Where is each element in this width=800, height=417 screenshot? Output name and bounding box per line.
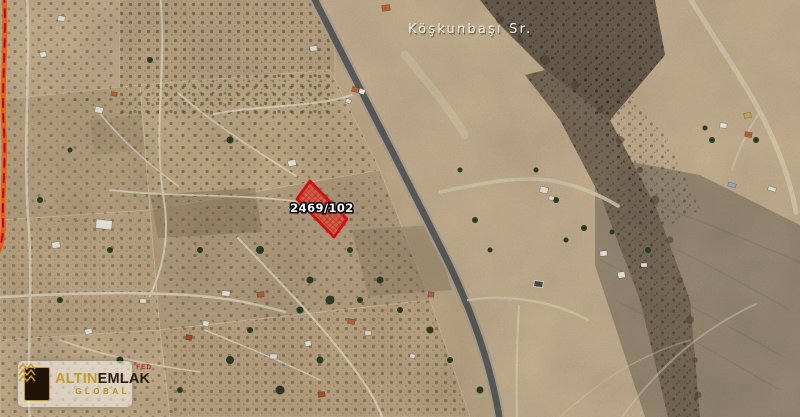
logo-brand-primary: ALTIN [55,371,98,387]
logo-fed-badge: FED [136,365,152,372]
altinemlak-logo-icon [24,367,50,401]
satellite-listing-image: 2469/102 Köşkunbaşı Sr. Köşkunbaşı Sr. A… [0,0,800,417]
street-name-label: Köşkunbaşı Sr. [408,22,532,37]
satellite-map: 2469/102 Köşkunbaşı Sr. Köşkunbaşı Sr. [0,0,800,417]
parcel-number-label: 2469/102 [290,201,353,215]
terrain-grain [0,0,800,417]
logo-brand-secondary: EMLAK [98,371,151,387]
logo-subtitle: GLOBAL [75,388,130,396]
agency-logo: ALTINEMLAK FED GLOBAL [18,361,132,407]
street-name: Köşkunbaşı Sr. Köşkunbaşı Sr. [408,22,533,39]
